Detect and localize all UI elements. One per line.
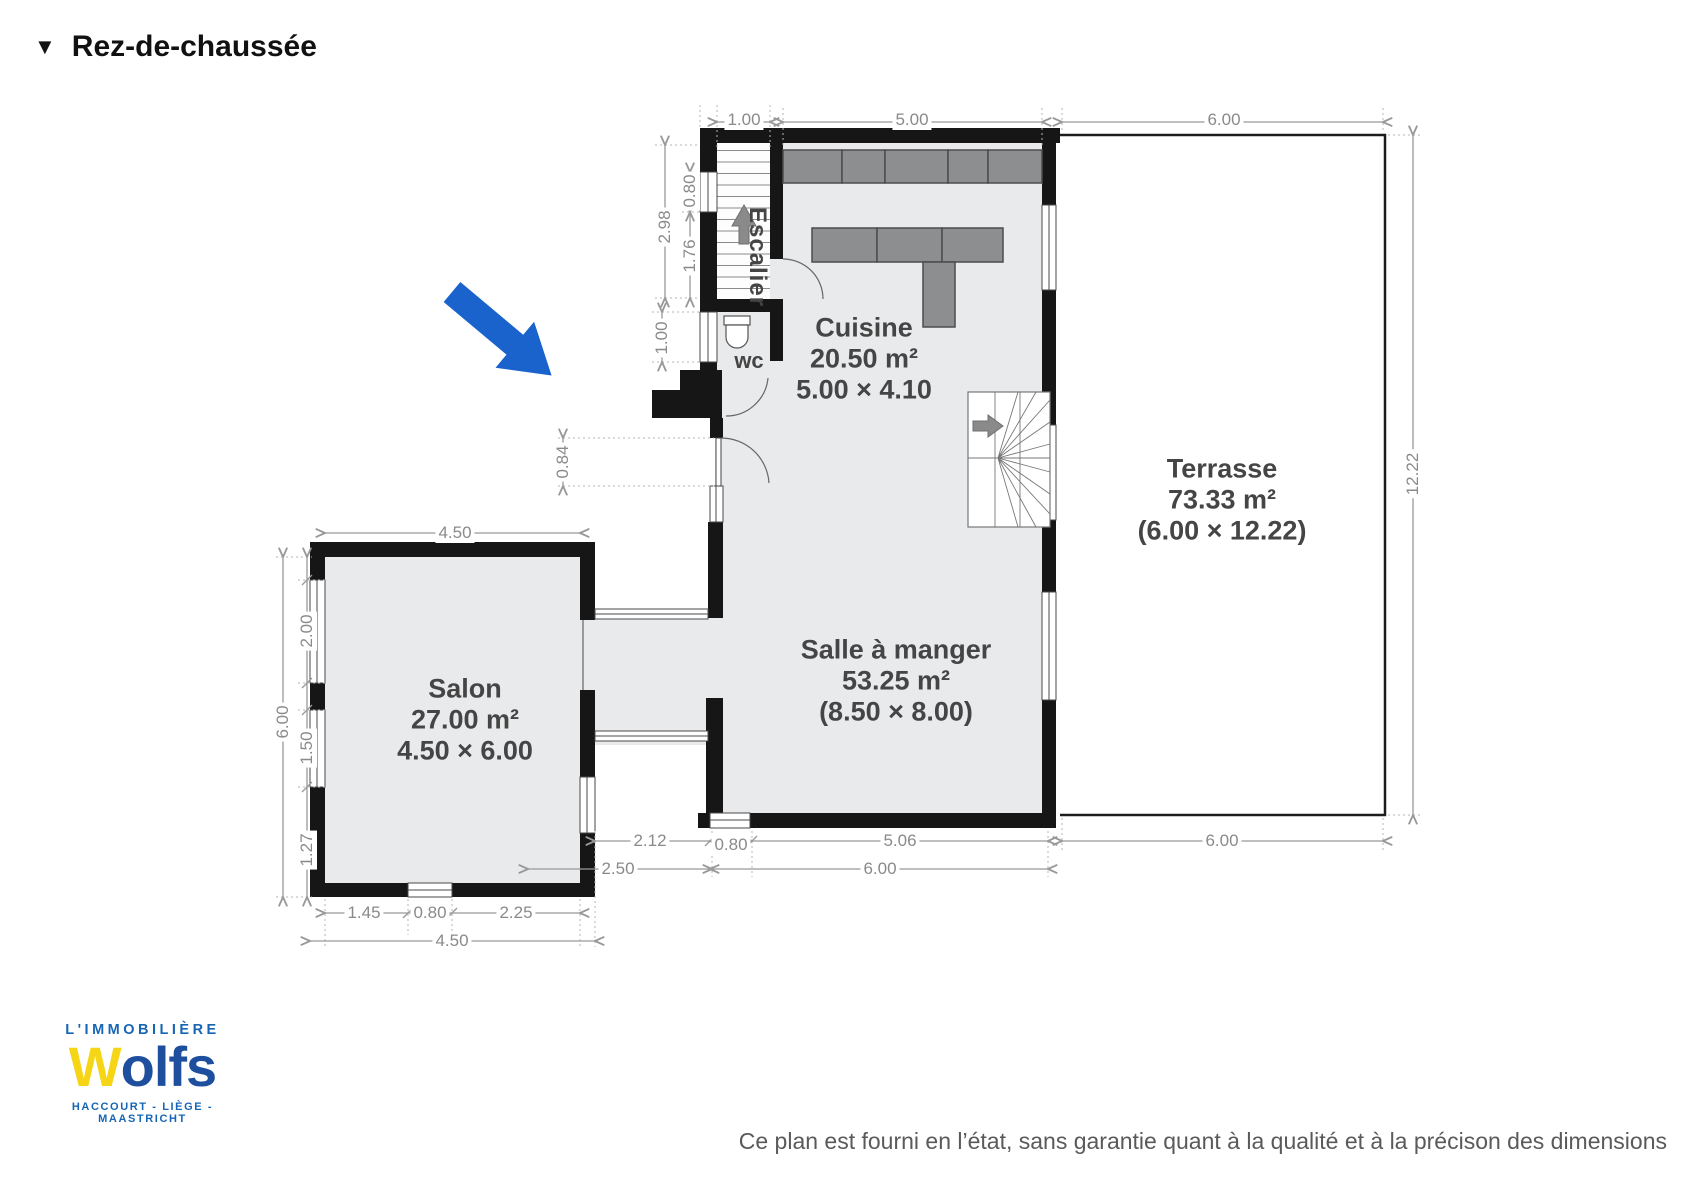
disclaimer-text: Ce plan est fourni en l’état, sans garan…	[739, 1128, 1667, 1155]
room-label-escalier: Escalier	[743, 207, 771, 307]
toilet	[724, 316, 750, 348]
agency-logo: L'IMMOBILIÈRE Wolfs HACCOURT - LIÈGE - M…	[40, 1022, 245, 1125]
dimension-label: 0.84	[553, 442, 573, 481]
page-title-text: Rez-de-chaussée	[72, 30, 317, 64]
dimension-label: 1.50	[297, 728, 317, 767]
dimension-label: 2.00	[297, 611, 317, 650]
logo-brand: Wolfs	[40, 1038, 245, 1097]
dimension-label: 1.00	[724, 110, 763, 130]
dimension-label: 2.25	[496, 903, 535, 923]
logo-brand-w: W	[69, 1038, 121, 1097]
dimension-label: 6.00	[273, 702, 293, 741]
entrance-arrow-icon	[433, 269, 571, 399]
dimension-label: 0.80	[680, 171, 700, 210]
dimension-label: 6.00	[860, 859, 899, 879]
dimension-label: 5.06	[880, 831, 919, 851]
dimension-label: 2.50	[598, 859, 637, 879]
dimension-label: 4.50	[432, 931, 471, 951]
dimension-label: 1.76	[680, 236, 700, 275]
dimension-label: 4.50	[435, 523, 474, 543]
dimension-label: 6.00	[1204, 110, 1243, 130]
dimension-label: 1.45	[344, 903, 383, 923]
dimension-label: 12.22	[1403, 450, 1423, 499]
room-label-terrasse: Terrasse 73.33 m² (6.00 × 12.22)	[1138, 454, 1307, 547]
logo-cities: HACCOURT - LIÈGE - MAASTRICHT	[40, 1101, 245, 1125]
dimension-label: 5.00	[892, 110, 931, 130]
logo-brand-rest: olfs	[121, 1035, 217, 1098]
dimension-label: 1.00	[652, 318, 672, 357]
dimension-label: 2.98	[655, 207, 675, 246]
dimension-label: 6.00	[1202, 831, 1241, 851]
dimension-label: 0.80	[410, 903, 449, 923]
stair-winder	[968, 392, 1050, 527]
room-label-salle-a-manger: Salle à manger 53.25 m² (8.50 × 8.00)	[801, 635, 992, 728]
floor-plan-drawing	[0, 0, 1699, 1200]
dimension-label: 1.27	[297, 830, 317, 869]
floor-plan-page: ▼ Rez-de-chaussée Cuisine 20.50 m² 5.00 …	[0, 0, 1699, 1200]
page-title: ▼ Rez-de-chaussée	[34, 30, 317, 64]
room-label-wc: wc	[734, 348, 763, 374]
collapse-triangle-icon: ▼	[34, 36, 56, 58]
dimension-label: 0.80	[711, 835, 750, 855]
room-label-salon: Salon 27.00 m² 4.50 × 6.00	[397, 674, 533, 767]
dimension-label: 2.12	[630, 831, 669, 851]
room-label-cuisine: Cuisine 20.50 m² 5.00 × 4.10	[796, 313, 932, 406]
